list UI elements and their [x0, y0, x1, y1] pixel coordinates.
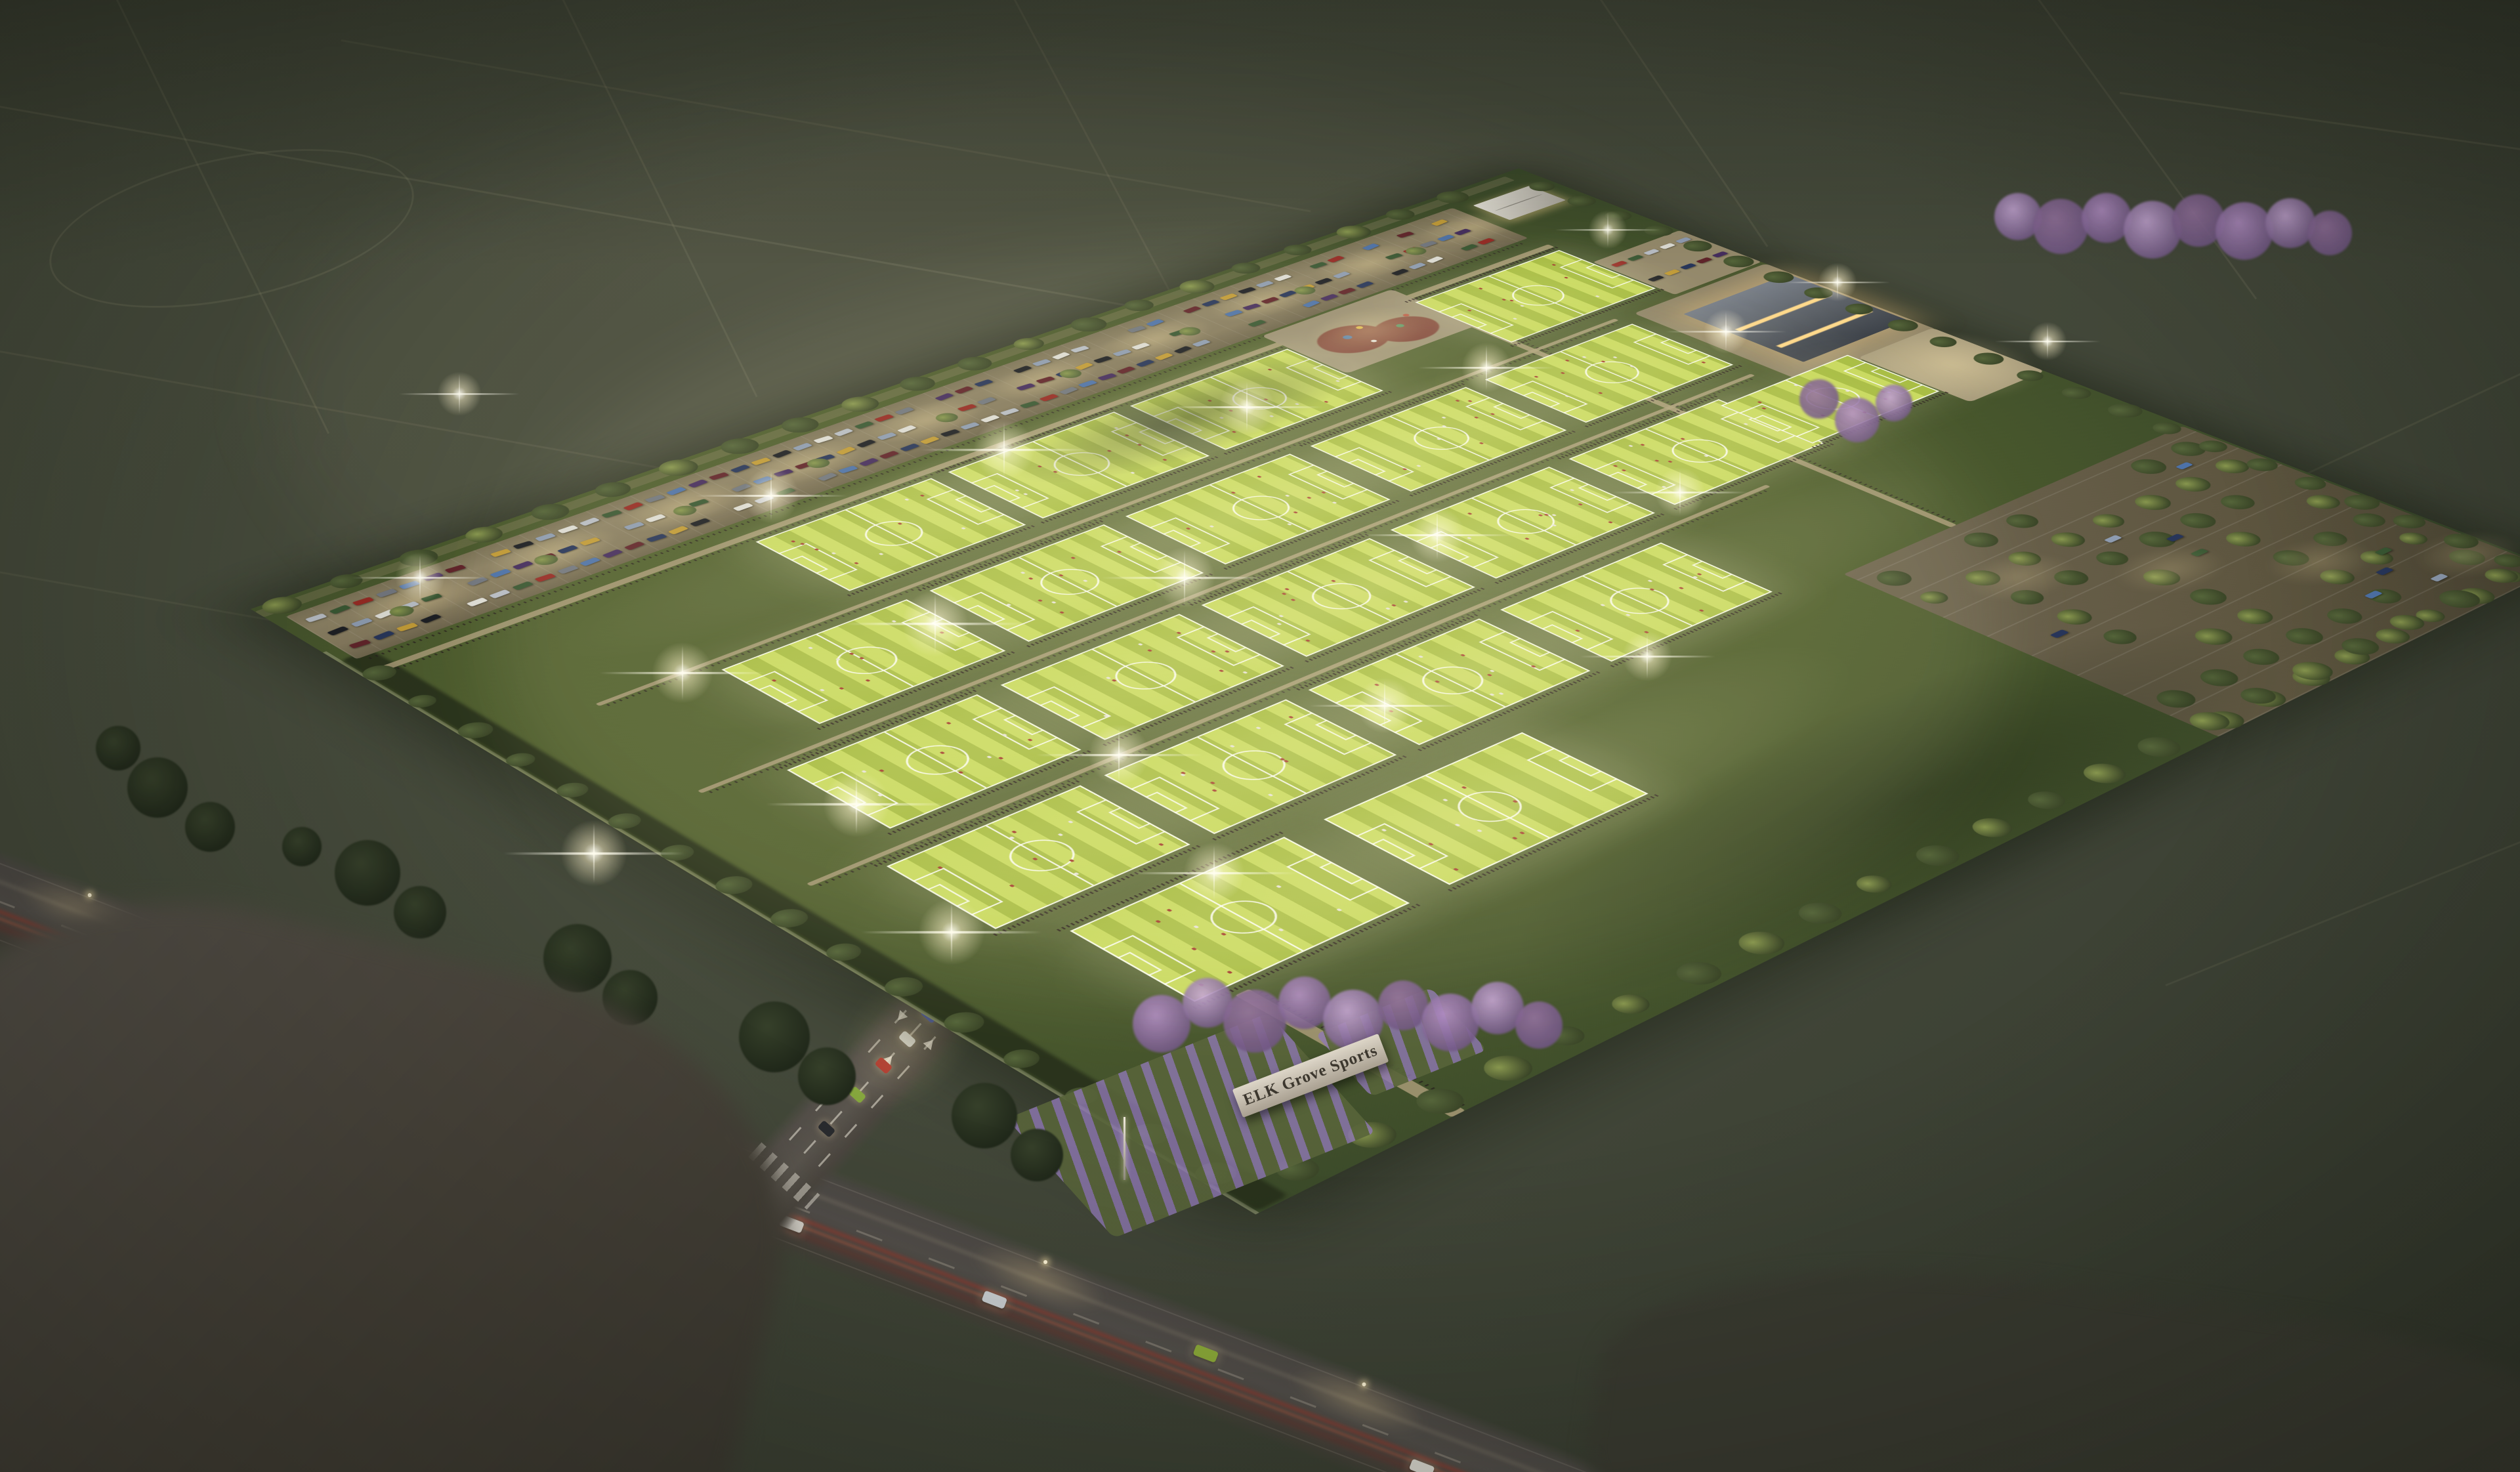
flare-streak-horizontal — [1785, 282, 1891, 283]
flare-halo — [393, 551, 448, 605]
flare-streak-vertical — [1607, 212, 1608, 247]
flare-streak-vertical — [459, 374, 460, 414]
flare-streak-horizontal — [1131, 872, 1297, 873]
flare-streak-horizontal — [1036, 753, 1202, 755]
flare-halo — [1653, 465, 1708, 520]
flare-streak-vertical — [1213, 845, 1215, 900]
flare-streak-horizontal — [1612, 492, 1748, 494]
flare-halo — [1181, 839, 1247, 906]
flare-streak-vertical — [1437, 510, 1438, 560]
flare-streak-vertical — [1003, 422, 1005, 477]
flare-halo — [1085, 721, 1152, 788]
flare-streak-horizontal — [1666, 331, 1786, 332]
flare-streak-horizontal — [1419, 367, 1555, 369]
flare-streak-vertical — [1246, 382, 1248, 432]
flare-halo — [1217, 377, 1277, 437]
flare-halo — [649, 639, 715, 705]
flare-streak-vertical — [770, 471, 772, 520]
flare-streak-vertical — [593, 823, 595, 883]
flare-halo — [1151, 544, 1217, 610]
flare-streak-horizontal — [399, 393, 520, 394]
flare-streak-vertical — [1679, 470, 1681, 515]
flare-streak-vertical — [1384, 681, 1385, 730]
flare-halo — [2026, 320, 2068, 362]
flare-streak-vertical — [1837, 264, 1837, 299]
entrance-light-pole — [1123, 1117, 1125, 1180]
flare-streak-horizontal — [1171, 406, 1322, 408]
flare-streak-horizontal — [1555, 229, 1661, 230]
flare-streak-horizontal — [600, 671, 766, 673]
flare-streak-horizontal — [503, 852, 684, 854]
flare-streak-vertical — [1486, 345, 1487, 390]
flare-streak-vertical — [856, 774, 857, 833]
flare-streak-vertical — [2047, 324, 2047, 358]
flare-streak-horizontal — [1309, 705, 1460, 707]
flare-streak-vertical — [682, 645, 683, 700]
flare-halo — [558, 817, 630, 889]
flare-streak-horizontal — [845, 622, 1026, 625]
flare-halo — [1407, 505, 1467, 565]
flare-halo — [1702, 307, 1750, 356]
flare-streak-vertical — [934, 593, 936, 653]
flare-streak-horizontal — [766, 803, 947, 805]
flare-streak-vertical — [1725, 312, 1727, 352]
flare-halo — [1459, 341, 1514, 395]
flare-halo — [1587, 209, 1629, 251]
flare-halo — [899, 587, 971, 660]
flare-halo — [1816, 261, 1858, 303]
flare-streak-horizontal — [1102, 576, 1268, 578]
flare-halo — [971, 416, 1037, 482]
flare-streak-vertical — [1118, 727, 1120, 782]
flare-streak-vertical — [419, 555, 421, 600]
flare-streak-horizontal — [921, 448, 1087, 450]
flare-halo — [741, 465, 801, 526]
flare-halo — [915, 896, 988, 968]
flare-streak-horizontal — [861, 931, 1042, 933]
flare-streak-vertical — [1184, 550, 1185, 605]
flare-streak-horizontal — [696, 495, 847, 497]
flare-streak-horizontal — [1580, 656, 1715, 658]
flare-streak-vertical — [1647, 634, 1648, 679]
flare-halo — [435, 369, 484, 418]
flare-halo — [1354, 675, 1415, 736]
flare-streak-horizontal — [1995, 341, 2101, 342]
flare-streak-horizontal — [1362, 534, 1513, 536]
flare-streak-vertical — [951, 902, 952, 961]
flare-streak-horizontal — [352, 577, 488, 579]
flare-halo — [1620, 629, 1675, 684]
flare-halo — [820, 768, 892, 840]
aerial-rendering-elk-grove-sports-complex: ELK Grove Sports — [0, 0, 2520, 1472]
